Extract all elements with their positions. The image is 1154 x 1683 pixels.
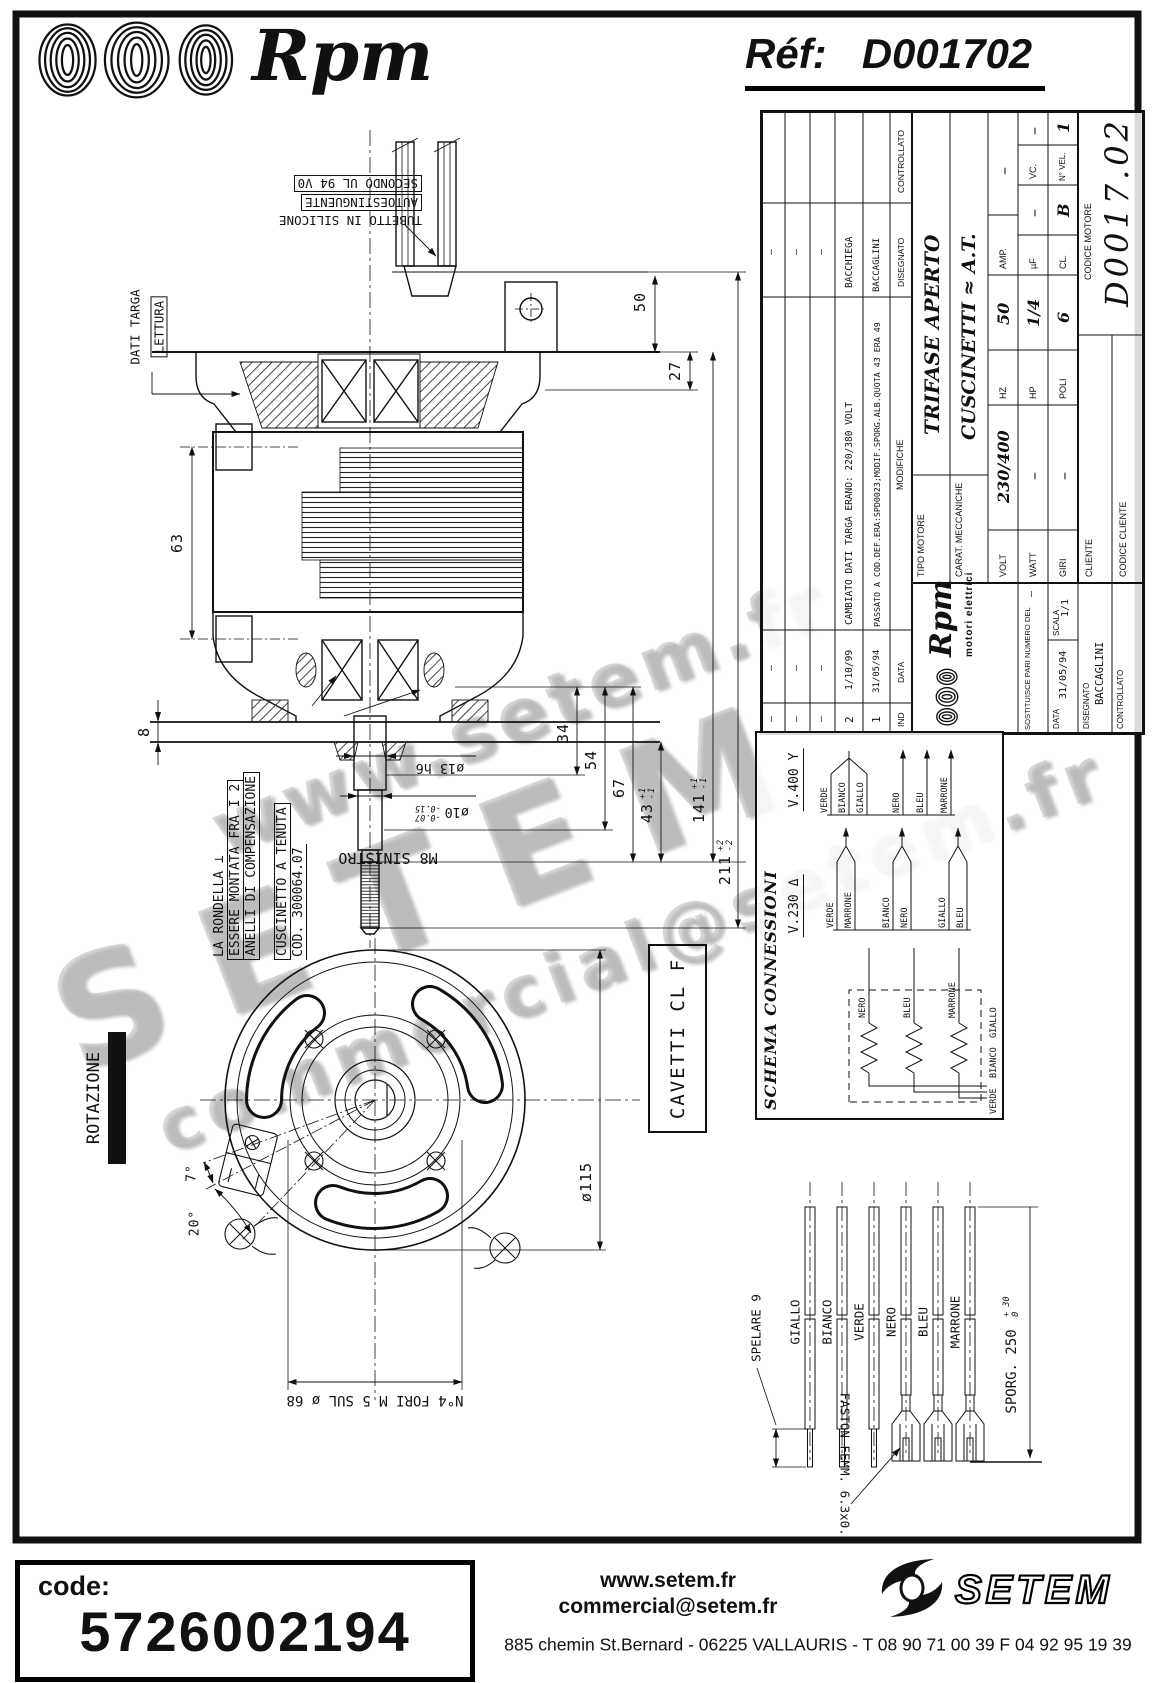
codice-motore-label: CODICE MOTORE xyxy=(1083,203,1093,280)
poli-label: POLI xyxy=(1058,378,1068,399)
rpm-coil-logo-small-icon xyxy=(926,665,968,727)
rev-header-drawn: DISEGNATO xyxy=(896,238,906,287)
hz-value: 50 xyxy=(994,303,1013,325)
v230-label: V.230 xyxy=(787,894,802,933)
cuscinetto-line1: CUSCINETTO A TENUTA xyxy=(274,803,291,960)
wire-label-marrone: MARRONE xyxy=(948,1296,963,1349)
dim-7deg-label: 7° xyxy=(185,1164,200,1182)
dim-43-value: 43 xyxy=(638,803,656,823)
dim-dia10-tol-dn: -0.15 xyxy=(415,803,441,812)
tubetto-line1: TUBETTO IN SILICONE xyxy=(279,213,422,228)
winding-bottom-2: GIALLO xyxy=(989,1007,999,1038)
data-label: DATA xyxy=(1052,709,1061,729)
rev0-name: – xyxy=(766,249,777,255)
ref-value: D001702 xyxy=(862,30,1032,77)
watt-label: WATT xyxy=(1028,553,1038,578)
schema-v230-header: V.230 Δ xyxy=(787,875,804,938)
rondella-line2: ESSERE MONTATA FRA I 2 xyxy=(227,780,243,960)
scala-value: 1/1 xyxy=(1060,599,1071,617)
codice-motore-value: D0017.02 xyxy=(1098,117,1136,307)
rev0-ind: – xyxy=(766,716,777,722)
dim-54-label: 54 xyxy=(582,750,600,770)
dim-20deg-label: 20° xyxy=(188,1210,203,1236)
rondella-line3: ANELLI DI COMPENSAZIONE xyxy=(243,772,260,960)
dim-dia10-label: ø10-0.07-0.15 xyxy=(415,803,469,821)
dim-34-label: 34 xyxy=(554,723,572,743)
wire-label-nero: NERO xyxy=(884,1307,899,1337)
hp-label: HP xyxy=(1028,386,1038,399)
code-label: code: xyxy=(38,1571,110,1602)
uf-value: – xyxy=(1024,209,1043,217)
rev2-name: – xyxy=(816,249,827,255)
dim-dia13-label: ø13 h6 xyxy=(416,760,465,776)
wire-label-bleu: BLEU xyxy=(916,1307,931,1337)
rev4-name: BACCAGLINI xyxy=(872,238,882,292)
volt-value: 230/400 xyxy=(994,430,1013,503)
winding-top-2: MARRONE xyxy=(948,982,958,1018)
dim-27-label: 27 xyxy=(666,361,684,381)
data-value: 31/05/94 xyxy=(1058,651,1069,699)
delta-0-1: MARRONE xyxy=(844,892,854,928)
rev1-date: – xyxy=(791,665,802,671)
footer-email[interactable]: commercial@setem.fr xyxy=(559,1595,778,1619)
nvel-label: N° VEL. xyxy=(1058,152,1067,181)
delta-2-0: GIALLO xyxy=(938,897,948,928)
codice-cliente-label: CODICE CLIENTE xyxy=(1118,501,1128,577)
star-2: GIALLO xyxy=(856,782,866,813)
rev4-desc: PASSATO A COD.DEF.ERA:SPD0023;MODIF.SPOR… xyxy=(872,322,882,627)
dim-43-label: 43+1-1 xyxy=(638,787,656,823)
cliente-label: CLIENTE xyxy=(1084,539,1094,577)
code-box: code: 5726002194 xyxy=(15,1560,475,1682)
amp-label: AMP. xyxy=(998,248,1008,269)
schema-v400-header: V.400 Y xyxy=(787,749,804,812)
cl-value: B xyxy=(1054,203,1073,217)
brand-name: Rpm xyxy=(252,14,433,97)
line-0: NERO xyxy=(892,793,902,813)
rev3-desc: CAMBIATO DATI TARGA ERANO: 220/380 VOLT xyxy=(844,402,855,625)
disegnato-value: BACCAGLINI xyxy=(1094,642,1106,705)
dim-50-label: 50 xyxy=(631,292,649,312)
rpm-coil-logo-icon xyxy=(32,18,247,102)
dim-141-tol-dn: -1 xyxy=(699,777,708,789)
rev3-date: 1/10/99 xyxy=(844,650,855,690)
wire-label-verde: VERDE xyxy=(852,1303,867,1341)
bolt-holes-note: N°4 FORI M 5 SUL ø 68 xyxy=(286,1392,463,1408)
giri-value: – xyxy=(1054,472,1073,480)
setem-brand: SETEM xyxy=(955,1568,1113,1613)
dim-141-label: 141+1-1 xyxy=(690,777,708,823)
amp-value: – xyxy=(994,167,1013,175)
dim-211-label: 211+2-2 xyxy=(716,839,734,885)
delta-symbol: Δ xyxy=(787,879,802,887)
hz-label: HZ xyxy=(998,387,1008,399)
rotazione-label: ROTAZIONE xyxy=(84,1052,104,1144)
dim-211-tol-dn: -2 xyxy=(725,839,734,851)
winding-top-1: BLEU xyxy=(903,998,913,1018)
rev2-date: – xyxy=(816,665,827,671)
rev4-date: 31/05/94 xyxy=(872,650,882,693)
rondella-note: LA RONDELLA ⊥ ESSERE MONTATA FRA I 2 ANE… xyxy=(212,700,345,960)
dim-dia115-label: ø115 xyxy=(577,1162,595,1202)
lettura-label: LETTURA xyxy=(151,297,168,358)
sporgenza-value: SPORG. 250 xyxy=(1004,1329,1020,1413)
drawing-sheet: www.setem.fr SETEM commercial@setem.fr R… xyxy=(0,0,1154,1683)
tubetto-line2: AUTOESTINGUENTE xyxy=(301,194,422,211)
volt-label: VOLT xyxy=(998,554,1008,577)
carat-value: CUSCINETTI ≈ A.T. xyxy=(958,233,980,440)
vc-value: – xyxy=(1024,127,1043,135)
setem-swoosh-icon xyxy=(872,1556,952,1620)
tubetto-callout: TUBETTO IN SILICONE AUTOESTINGUENTE SECO… xyxy=(222,175,422,228)
rev3-ind: 2 xyxy=(843,716,856,723)
wire-label-giallo: GIALLO xyxy=(788,1299,803,1344)
reference-block: Réf: D001702 xyxy=(745,30,1045,91)
dim-211-value: 211 xyxy=(716,855,734,885)
code-value: 5726002194 xyxy=(20,1599,470,1664)
faston-label: FASTON FEMM. 6.3x0.8 xyxy=(838,1393,853,1544)
delta-0-0: VERDE xyxy=(826,902,836,928)
giri-label: GIRI xyxy=(1058,558,1068,577)
winding-top-0: NERO xyxy=(858,998,868,1018)
title-block: – – – – – – – – – 2 1/10/99 CAMBIATO DAT… xyxy=(760,110,1145,735)
footer-address: 885 chemin St.Bernard - 06225 VALLAURIS … xyxy=(504,1635,1132,1656)
cavetti-label: CAVETTI CL F xyxy=(667,958,689,1119)
rev-header-ind: IND xyxy=(896,712,906,727)
sporgenza-tol-dn: 0 xyxy=(1012,1296,1021,1316)
cuscinetto-line2: COD. 300064.07 xyxy=(291,844,307,960)
rev-header-desc: MODIFICHE xyxy=(895,440,905,491)
line-2: MARRONE xyxy=(940,777,950,813)
carat-label: CARAT. MECCANICHE xyxy=(954,483,964,577)
delta-1-0: BIANCO xyxy=(882,897,892,928)
cavetti-box: CAVETTI CL F xyxy=(648,944,707,1133)
star-0: VERDE xyxy=(820,787,830,813)
rev3-name: BACCHIEGA xyxy=(844,237,855,288)
watt-value: – xyxy=(1024,472,1043,480)
dim-141-value: 141 xyxy=(690,793,708,823)
star-1: BIANCO xyxy=(838,782,848,813)
line-1: BLEU xyxy=(916,793,926,813)
hp-value: 1/4 xyxy=(1024,299,1043,327)
sostituisce-label: SOSTITUISCE PARI NUMERO DEL xyxy=(1023,607,1032,730)
tb-logo-brand: Rpm xyxy=(924,579,959,657)
sporgenza-label: SPORG. 250 + 300 xyxy=(1003,1296,1021,1413)
rev4-ind: 1 xyxy=(870,716,883,723)
winding-bottom-0: VERDE xyxy=(989,1088,999,1114)
ref-label: Réf: xyxy=(745,30,827,77)
winding-bottom-1: BIANCO xyxy=(989,1047,999,1078)
star-symbol: Y xyxy=(787,753,802,761)
dim-8-label: 8 xyxy=(135,727,153,737)
rev1-ind: – xyxy=(791,716,802,722)
cl-label: CL. xyxy=(1058,255,1068,269)
rev0-date: – xyxy=(766,665,777,671)
dim-43-tol-dn: -1 xyxy=(647,787,656,799)
sostituisce-value: – xyxy=(1026,591,1037,597)
rev-header-checked: CONTROLLATO xyxy=(896,130,906,193)
delta-1-1: NERO xyxy=(900,908,910,928)
rev2-ind: – xyxy=(816,716,827,722)
footer-web[interactable]: www.setem.fr xyxy=(600,1569,736,1593)
tipo-value: TRIFASE APERTO xyxy=(920,235,944,435)
m8-sinistro-label: M8 SINISTRO xyxy=(338,849,437,867)
dim-dia10-value: ø10 xyxy=(445,804,469,820)
tubetto-line3: SECONDO UL 94 V0 xyxy=(294,175,422,192)
controllato-label: CONTROLLATO xyxy=(1116,670,1125,729)
spelare-label: SPELARE 9 xyxy=(749,1294,764,1362)
delta-2-1: BLEU xyxy=(956,908,966,928)
dati-targa-label: DATI TARGA xyxy=(128,289,143,364)
v400-label: V.400 xyxy=(787,768,802,807)
poli-value: 6 xyxy=(1054,312,1073,323)
dim-63-label: 63 xyxy=(168,533,186,553)
nvel-value: 1 xyxy=(1054,122,1073,133)
vc-label: VC. xyxy=(1028,164,1038,179)
uf-label: µF xyxy=(1028,258,1038,269)
schema-connessioni-box: SCHEMA CONNESSIONI xyxy=(755,731,1004,1120)
dim-dia10-tol-up: -0.07 xyxy=(415,812,441,821)
wire-label-bianco: BIANCO xyxy=(820,1299,835,1344)
rondella-line1: LA RONDELLA ⊥ xyxy=(212,852,227,960)
tipo-label: TIPO MOTORE xyxy=(916,514,926,577)
tb-logo-sub: motori elettrici xyxy=(964,572,975,657)
dim-67-label: 67 xyxy=(610,778,628,798)
rev-header-date: DATA xyxy=(896,662,906,683)
disegnato-label: DISEGNATO xyxy=(1082,683,1091,729)
rev1-name: – xyxy=(791,249,802,255)
setem-brand-text: SETEM xyxy=(955,1568,1113,1612)
